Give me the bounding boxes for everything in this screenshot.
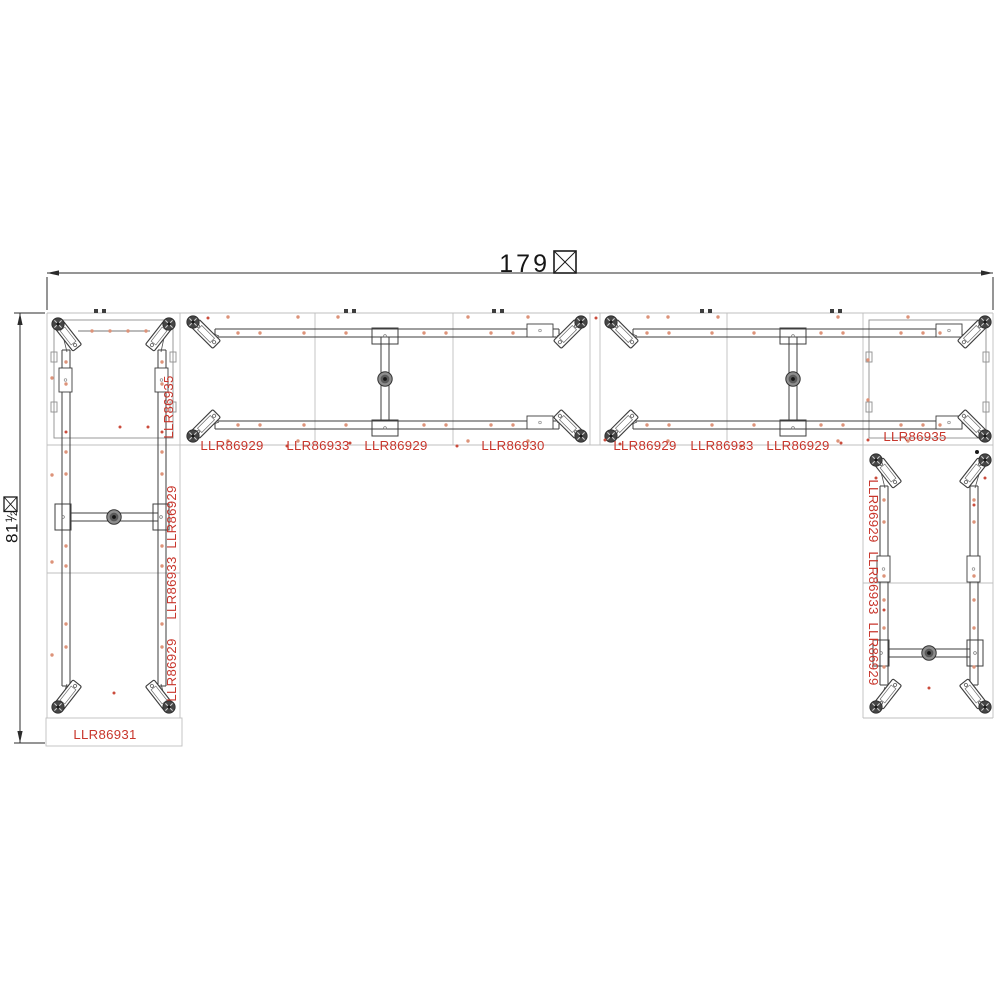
part-label: LLR86933 (164, 556, 179, 619)
part-label: LLR86931 (73, 727, 136, 742)
part-label: LLR86929 (164, 485, 179, 548)
screw-hole (752, 423, 755, 426)
screw-hole (64, 564, 67, 567)
screw-hole-red (595, 317, 598, 320)
pivot-joint (378, 372, 392, 386)
screw-hole (646, 315, 649, 318)
screw-hole (296, 315, 299, 318)
part-label: LLR86929 (866, 622, 881, 685)
screw-hole (422, 331, 425, 334)
screw-hole-layer (50, 315, 986, 694)
leg-foot (575, 430, 587, 442)
arrowhead-icon (17, 731, 22, 743)
screw-hole-red (119, 426, 122, 429)
part-label: LLR86929 (613, 438, 676, 453)
alignment-tick (838, 309, 842, 313)
screw-hole (50, 560, 53, 563)
screw-hole-red (147, 426, 150, 429)
screw-hole (511, 423, 514, 426)
screw-hole (50, 653, 53, 656)
screw-hole (258, 331, 261, 334)
pivot-joint (922, 646, 936, 660)
screw-hole (645, 423, 648, 426)
screw-hole (841, 423, 844, 426)
screw-hole-red (207, 317, 210, 320)
screw-hole (972, 598, 975, 601)
assembly-diagram: LLR86935LLR86929LLR86933LLR86929LLR86930… (0, 0, 1000, 1000)
alignment-tick (492, 309, 496, 313)
screw-hole (836, 315, 839, 318)
leg-foot (979, 454, 991, 466)
alignment-tick (352, 309, 356, 313)
screw-hole (144, 329, 147, 332)
width-dimension-value: 179 (499, 250, 550, 278)
screw-hole (466, 315, 469, 318)
screw-hole (921, 331, 924, 334)
screw-hole (302, 423, 305, 426)
top-dimension: 179 (47, 250, 993, 310)
mounting-plate (372, 328, 398, 344)
screw-hole-red (113, 692, 116, 695)
screw-hole-red (840, 442, 843, 445)
screw-hole (938, 423, 941, 426)
screw-hole (336, 315, 339, 318)
screw-hole (972, 574, 975, 577)
arrowhead-icon (17, 313, 22, 325)
screw-hole (866, 358, 869, 361)
screw-hole (882, 574, 885, 577)
screw-hole (422, 423, 425, 426)
screw-hole (444, 331, 447, 334)
mounting-plate (967, 640, 983, 666)
screw-hole (160, 450, 163, 453)
part-label: LLR86929 (766, 438, 829, 453)
screw-hole (866, 398, 869, 401)
leg-foot (575, 316, 587, 328)
rail-joint-block (936, 324, 962, 337)
alignment-tick (344, 309, 348, 313)
screw-hole (972, 498, 975, 501)
screw-hole (489, 423, 492, 426)
screw-hole (226, 315, 229, 318)
plate-hole (160, 516, 163, 519)
rail-joint-block (59, 368, 72, 392)
screw-hole (906, 315, 909, 318)
screw-hole (899, 331, 902, 334)
screw-hole (921, 423, 924, 426)
leg-foot (163, 701, 175, 713)
leg-foot (187, 430, 199, 442)
screw-hole (667, 331, 670, 334)
part-label: LLR86935 (883, 429, 946, 444)
rail-joint-block (527, 416, 553, 429)
screw-hole (841, 331, 844, 334)
screw-hole (752, 331, 755, 334)
alignment-tick (708, 309, 712, 313)
screw-hole (344, 423, 347, 426)
screw-hole (50, 473, 53, 476)
missing-glyph-box-icon (554, 251, 576, 273)
screw-hole (526, 315, 529, 318)
screw-hole (64, 622, 67, 625)
screw-hole-red (65, 431, 68, 434)
screw-hole (489, 331, 492, 334)
leg-foot (870, 701, 882, 713)
screw-hole (882, 665, 885, 668)
screw-hole (882, 626, 885, 629)
frame-structure-layer (52, 309, 991, 713)
panel-outline-layer (46, 313, 993, 746)
screw-hole (716, 315, 719, 318)
rail-joint-block (527, 324, 553, 337)
rail-joint-block (967, 556, 980, 582)
screw-hole (64, 382, 67, 385)
screw-hole (258, 423, 261, 426)
screw-hole (64, 360, 67, 363)
screw-hole (236, 423, 239, 426)
part-label: LLR86929 (866, 479, 881, 542)
screw-hole (126, 329, 129, 332)
screw-hole (710, 423, 713, 426)
pivot-joint (107, 510, 121, 524)
alignment-tick (830, 309, 834, 313)
screw-hole (836, 439, 839, 442)
screw-hole-red (973, 504, 976, 507)
screw-hole (645, 331, 648, 334)
screw-hole (972, 626, 975, 629)
mounting-plate (55, 504, 71, 530)
leg-foot (979, 701, 991, 713)
alignment-tick (102, 309, 106, 313)
height-dimension-value: 81 (3, 523, 22, 543)
leg-foot (52, 701, 64, 713)
screw-hole (882, 598, 885, 601)
screw-hole-red (928, 687, 931, 690)
alignment-tick (500, 309, 504, 313)
part-label: LLR86929 (364, 438, 427, 453)
leg-foot (163, 318, 175, 330)
arrowhead-icon (981, 270, 993, 275)
screw-hole (899, 423, 902, 426)
leg-foot (870, 454, 882, 466)
screw-hole (666, 315, 669, 318)
height-fraction-numerator: 1 (4, 517, 15, 522)
screw-hole (819, 423, 822, 426)
screw-hole (90, 329, 93, 332)
screw-hole (160, 622, 163, 625)
screw-hole-red (984, 477, 987, 480)
part-label: LLR86933 (690, 438, 753, 453)
leg-foot (979, 430, 991, 442)
screw-hole (882, 498, 885, 501)
screw-hole (972, 665, 975, 668)
screw-hole-red (867, 439, 870, 442)
screw-hole (302, 331, 305, 334)
part-label: LLR86929 (164, 638, 179, 701)
screw-hole (466, 439, 469, 442)
part-label: LLR86935 (161, 375, 176, 438)
screw-hole (64, 472, 67, 475)
screw-hole-red (456, 445, 459, 448)
left-dimension: 81 1 2 (3, 313, 46, 743)
screw-hole (882, 520, 885, 523)
alignment-tick (94, 309, 98, 313)
mounting-plate (372, 420, 398, 436)
screw-hole (511, 331, 514, 334)
screw-hole (64, 544, 67, 547)
pivot-joint (786, 372, 800, 386)
leg-foot (979, 316, 991, 328)
part-label: LLR86933 (866, 551, 881, 614)
screw-hole (108, 329, 111, 332)
part-label: LLR86933 (286, 438, 349, 453)
screw-hole (710, 331, 713, 334)
screw-hole (160, 472, 163, 475)
arrowhead-icon (47, 270, 59, 275)
screw-hole (819, 331, 822, 334)
leg-foot (52, 318, 64, 330)
screw-hole (972, 520, 975, 523)
reference-dot (975, 450, 979, 454)
part-label: LLR86929 (200, 438, 263, 453)
leg-foot (605, 316, 617, 328)
leg-foot (187, 316, 199, 328)
missing-glyph-box-icon (4, 497, 17, 512)
alignment-tick (700, 309, 704, 313)
screw-hole (64, 450, 67, 453)
height-dimension-text: 81 1 2 (3, 497, 22, 543)
screw-hole (64, 645, 67, 648)
screw-hole (344, 331, 347, 334)
screw-hole (667, 423, 670, 426)
screw-hole (160, 360, 163, 363)
screw-hole (50, 376, 53, 379)
plate-hole (974, 652, 977, 655)
screw-hole (938, 331, 941, 334)
screw-hole (444, 423, 447, 426)
screw-hole (236, 331, 239, 334)
part-label: LLR86930 (481, 438, 544, 453)
mounting-plate (780, 420, 806, 436)
screw-hole-red (883, 609, 886, 612)
screw-hole-red (604, 439, 607, 442)
mounting-plate (780, 328, 806, 344)
